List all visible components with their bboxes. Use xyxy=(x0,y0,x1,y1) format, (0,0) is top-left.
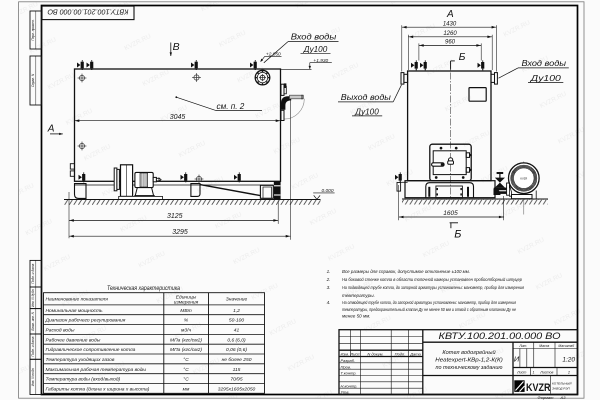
svg-text:А: А xyxy=(47,123,55,134)
svg-text:Б: Б xyxy=(454,229,461,241)
svg-text:3295х1605х2050: 3295х1605х2050 xyxy=(218,386,256,392)
svg-text:А: А xyxy=(446,9,454,20)
svg-text:Наименование показателя: Наименование показателя xyxy=(46,296,109,302)
svg-text:Температура уходящих газов: Температура уходящих газов xyxy=(46,357,115,363)
svg-text:Инв. N подл.: Инв. N подл. xyxy=(31,367,35,386)
svg-text:1605: 1605 xyxy=(443,210,458,217)
svg-text:не более 250: не более 250 xyxy=(222,357,252,363)
svg-text:1,2: 1,2 xyxy=(233,308,240,314)
svg-text:KVZR: KVZR xyxy=(520,177,527,181)
svg-text:Ду100: Ду100 xyxy=(530,74,562,83)
svg-text:2: 2 xyxy=(567,370,570,374)
svg-text:115: 115 xyxy=(233,367,241,373)
svg-text:1:20: 1:20 xyxy=(562,357,575,364)
svg-text:Температура воды (вход/выход): Температура воды (вход/выход) xyxy=(46,377,121,383)
svg-text:см. п. 2: см. п. 2 xyxy=(217,102,245,111)
svg-text:41: 41 xyxy=(234,328,240,334)
svg-text:менее 50 мм.: менее 50 мм. xyxy=(342,313,371,318)
svg-text:Справ. N: Справ. N xyxy=(31,73,35,87)
svg-text:мм: мм xyxy=(183,387,190,392)
svg-text:Heatexpert-КВр-1,2-К(К): Heatexpert-КВр-1,2-К(К) xyxy=(435,358,503,364)
svg-text:0,6 (6,0): 0,6 (6,0) xyxy=(227,337,246,343)
svg-text:Утв.: Утв. xyxy=(341,390,350,395)
svg-text:KVZR: KVZR xyxy=(526,382,551,394)
svg-text:Лит.: Лит. xyxy=(518,344,527,348)
svg-text:N докум.: N докум. xyxy=(367,351,383,356)
svg-text:Дата: Дата xyxy=(409,351,421,356)
svg-text:70/95: 70/95 xyxy=(230,377,243,383)
svg-text:Максимальная рабочая температу: Максимальная рабочая температура воды xyxy=(46,367,147,373)
svg-text:Подп.: Подп. xyxy=(395,351,406,356)
svg-text:Все размеры для справок, допус: Все размеры для справок, допустимое откл… xyxy=(342,269,470,274)
svg-text:КВТУ.100.201.00.000 ВО: КВТУ.100.201.00.000 ВО xyxy=(47,8,128,17)
svg-text:1260: 1260 xyxy=(443,31,457,37)
svg-text:Подп. и дата: Подп. и дата xyxy=(31,264,35,284)
svg-text:Изм.: Изм. xyxy=(341,351,350,356)
svg-text:Вход воды: Вход воды xyxy=(522,59,567,68)
svg-text:м3/ч: м3/ч xyxy=(181,328,191,334)
svg-text:°С: °С xyxy=(183,357,189,363)
svg-text:МПа (кгс/см2): МПа (кгс/см2) xyxy=(170,337,202,343)
svg-text:Разраб.: Разраб. xyxy=(341,358,355,363)
svg-text:Н.контр.: Н.контр. xyxy=(341,383,358,388)
svg-text:температуры, предохранительный: температуры, предохранительный клапан Ду… xyxy=(342,306,516,312)
svg-text:Ду100: Ду100 xyxy=(354,107,379,116)
svg-text:Взам. инв. N: Взам. инв. N xyxy=(31,311,35,330)
svg-text:Лист: Лист xyxy=(516,370,526,374)
svg-text:Диапазон рабочего регулировани: Диапазон рабочего регулирования xyxy=(45,318,126,324)
svg-text:%: % xyxy=(184,318,189,324)
svg-text:Т.контр.: Т.контр. xyxy=(341,371,357,376)
svg-text:Единицы: Единицы xyxy=(176,295,197,301)
svg-text:Листов: Листов xyxy=(539,370,553,374)
svg-text:Габариты котла (длина х ширина: Габариты котла (длина х ширина х высота) xyxy=(46,386,150,392)
svg-text:Номинальная мощность: Номинальная мощность xyxy=(46,308,104,314)
svg-text:МВт: МВт xyxy=(180,308,191,314)
svg-text:Инв. N дубл.: Инв. N дубл. xyxy=(31,288,35,307)
svg-text:Ду100: Ду100 xyxy=(303,45,328,54)
svg-text:Масса: Масса xyxy=(539,344,549,348)
svg-text:Расход воды: Расход воды xyxy=(46,328,75,334)
svg-text:0,06 (0,6): 0,06 (0,6) xyxy=(226,347,247,353)
svg-text:В: В xyxy=(173,41,180,53)
svg-text:1430: 1430 xyxy=(443,21,457,27)
svg-text:температуры.: температуры. xyxy=(342,293,375,298)
svg-text:3045: 3045 xyxy=(170,114,186,121)
svg-text:3.: 3. xyxy=(327,285,331,290)
svg-text:Формат: Формат xyxy=(538,395,555,400)
svg-text:960: 960 xyxy=(445,40,456,46)
svg-text:Рабочее давление воды: Рабочее давление воды xyxy=(46,337,101,343)
svg-text:Выход воды: Выход воды xyxy=(341,93,391,102)
svg-text:Б: Б xyxy=(459,51,466,63)
svg-text:На подводящей трубе котла, до: На подводящей трубе котла, до запорной а… xyxy=(342,284,524,290)
svg-text:2.: 2. xyxy=(326,277,331,282)
svg-text:°С: °С xyxy=(183,367,189,373)
svg-text:МПа (кгс/см2): МПа (кгс/см2) xyxy=(170,347,202,353)
svg-text:КОТЕЛЬНЫЙ: КОТЕЛЬНЫЙ xyxy=(552,381,572,385)
svg-text:Значение: Значение xyxy=(226,297,248,303)
svg-text:А3: А3 xyxy=(560,395,567,400)
svg-text:Подп. и дата: Подп. и дата xyxy=(31,336,35,356)
svg-text:И: И xyxy=(514,355,520,364)
svg-text:4.: 4. xyxy=(327,300,331,305)
svg-text:Гидравлическое сопротивление к: Гидравлическое сопротивление котла xyxy=(46,347,136,353)
svg-text:1: 1 xyxy=(533,370,535,374)
svg-text:Техническая характеристика: Техническая характеристика xyxy=(107,286,181,292)
svg-text:Вход воды: Вход воды xyxy=(291,33,337,42)
svg-text:Пров.: Пров. xyxy=(341,364,352,369)
svg-text:ЗАВОД РЭП: ЗАВОД РЭП xyxy=(552,387,571,391)
svg-text:3125: 3125 xyxy=(167,213,183,220)
svg-text:по техническому заданию: по техническому заданию xyxy=(436,365,504,371)
svg-text:Котел водогрейный: Котел водогрейный xyxy=(442,349,495,356)
svg-text:КВТУ.100.201.00.000 ВО: КВТУ.100.201.00.000 ВО xyxy=(439,331,562,342)
svg-text:На отводящей трубе котла, до з: На отводящей трубе котла, до запорной ар… xyxy=(342,299,516,305)
svg-text:3295: 3295 xyxy=(172,229,188,236)
svg-text:На боковой стенке котла в обла: На боковой стенке котла в области топочн… xyxy=(342,276,522,282)
svg-text:1.: 1. xyxy=(327,269,331,274)
svg-text:Масштаб: Масштаб xyxy=(558,344,574,348)
svg-text:°С: °С xyxy=(183,377,189,383)
svg-text:+1.930: +1.930 xyxy=(313,58,328,64)
svg-text:Перв. примен.: Перв. примен. xyxy=(31,19,35,40)
svg-text:Лист: Лист xyxy=(349,351,361,356)
svg-text:измерения: измерения xyxy=(174,301,199,306)
svg-text:50-100: 50-100 xyxy=(229,318,245,324)
